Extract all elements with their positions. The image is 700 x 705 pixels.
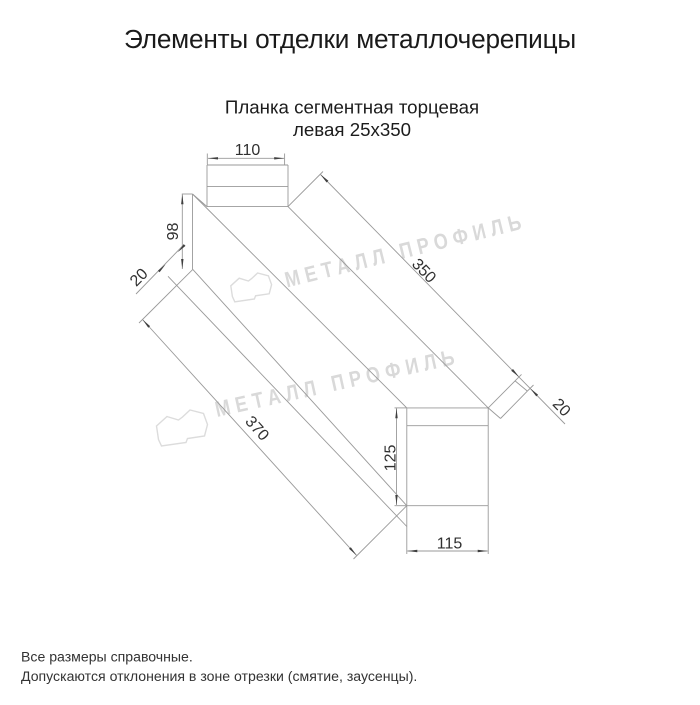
svg-text:98: 98 [165, 223, 182, 241]
svg-text:Планка сегментная торцевая: Планка сегментная торцевая [225, 97, 479, 118]
svg-text:Элементы отделки металлочерепи: Элементы отделки металлочерепицы [124, 24, 576, 54]
svg-text:125: 125 [383, 444, 400, 471]
svg-text:левая 25х350: левая 25х350 [293, 119, 411, 140]
svg-text:Все размеры справочные.: Все размеры справочные. [21, 649, 193, 665]
svg-text:115: 115 [437, 535, 463, 552]
svg-text:110: 110 [235, 142, 261, 159]
svg-text:Допускаются отклонения в зоне: Допускаются отклонения в зоне отрезки (с… [21, 668, 417, 684]
